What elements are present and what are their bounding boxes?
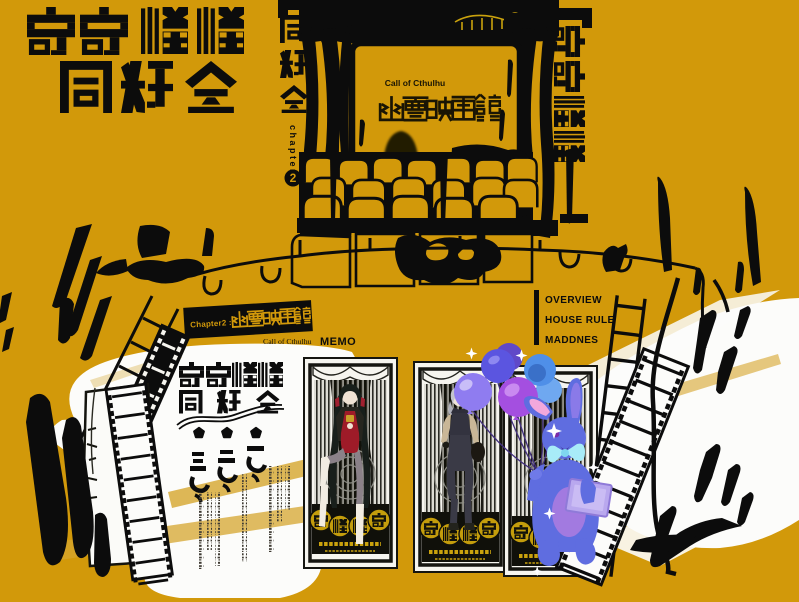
svg-text:HOUSE RULE: HOUSE RULE — [545, 315, 615, 326]
svg-text:2: 2 — [290, 171, 297, 185]
svg-text:OVERVIEW: OVERVIEW — [545, 295, 602, 306]
svg-text:MADDNES: MADDNES — [545, 335, 598, 346]
svg-text:MEMO: MEMO — [320, 336, 356, 348]
svg-text:Call of Cthulhu: Call of Cthulhu — [263, 337, 312, 346]
svg-text:Call of Cthulhu: Call of Cthulhu — [385, 78, 445, 88]
svg-text:chapter: chapter — [288, 125, 298, 175]
